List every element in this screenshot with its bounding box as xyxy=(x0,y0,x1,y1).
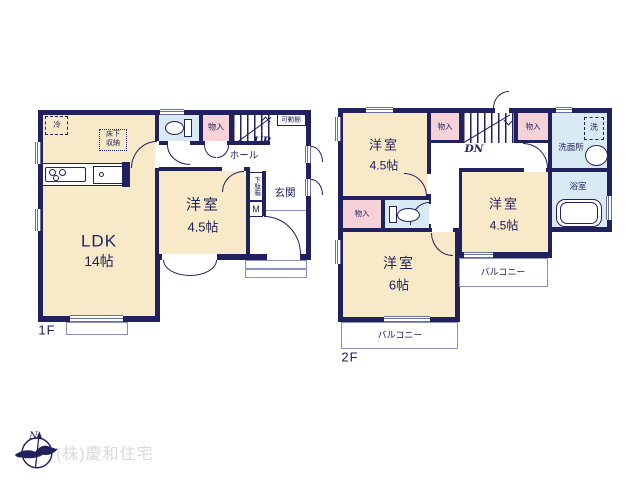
underfloor-label-2: 収納 xyxy=(106,140,120,148)
toilet-tank-icon xyxy=(389,206,397,223)
compass-icon: N xyxy=(12,426,60,474)
sink-basin-icon xyxy=(585,145,608,166)
wall xyxy=(122,162,130,187)
window xyxy=(384,316,430,322)
door-gap xyxy=(432,228,453,232)
window xyxy=(335,240,341,264)
genkan-step-line xyxy=(266,210,306,211)
closet-label-2f-top2: 物入 xyxy=(526,123,541,131)
fridge-label: 冷 xyxy=(53,121,61,129)
closet-label-1f: 物入 xyxy=(208,124,224,133)
casement-window-arc xyxy=(311,146,323,162)
svg-text:N: N xyxy=(28,430,38,441)
toilet-icon xyxy=(397,208,420,222)
shoe-cabinet-label: 下駄箱 xyxy=(252,176,259,196)
casement-window-arc xyxy=(311,179,323,195)
toilet-icon xyxy=(165,121,184,135)
floorplan-canvas: LDK 14帖 洋室 4.5帖 冷 床下 収納 物入 可動棚 ホール UP 玄関… xyxy=(0,0,640,480)
door-gap xyxy=(427,174,431,194)
floor-label-2f: 2F xyxy=(341,351,358,366)
terrace-step xyxy=(66,322,128,335)
room-label-yoshitsu-1f: 洋室 xyxy=(186,198,220,215)
room-label-yoshitsu-e: 洋室 xyxy=(489,198,519,213)
bathroom-label: 浴室 xyxy=(569,182,586,192)
balcony-east-label: バルコニー xyxy=(481,267,526,277)
window xyxy=(556,107,572,113)
faucet-icon xyxy=(99,172,104,177)
terrace-door-arc xyxy=(163,260,190,276)
room-size-ldk: 14帖 xyxy=(84,254,114,270)
hall-2f xyxy=(431,143,459,228)
window xyxy=(335,117,341,141)
porch-step xyxy=(245,260,307,269)
stairs-up-label: UP xyxy=(253,136,270,148)
door-gap xyxy=(495,108,509,113)
room-label-ldk: LDK xyxy=(81,231,117,250)
washroom-label: 洗面所 xyxy=(558,143,584,153)
toilet-tank-icon xyxy=(184,119,192,137)
company-name: (株)慶和住宅 xyxy=(56,440,154,464)
room-size-yoshitsu-e: 4.5帖 xyxy=(490,219,519,232)
room-size-yoshitsu-1f: 4.5帖 xyxy=(187,221,218,236)
room-label-yoshitsu-nw: 洋室 xyxy=(369,139,399,154)
underfloor-label-1: 床下 xyxy=(106,131,120,139)
porch-step xyxy=(245,269,307,278)
room-label-yoshitsu-sw: 洋室 xyxy=(383,256,415,272)
door-gap xyxy=(429,204,433,224)
window xyxy=(606,196,612,220)
closet-label-2f-top1: 物入 xyxy=(438,123,453,131)
burner-icon xyxy=(53,175,59,181)
window xyxy=(366,107,393,113)
room-size-yoshitsu-sw: 6帖 xyxy=(389,279,409,294)
window xyxy=(70,315,123,322)
stairs-dn-label: DN xyxy=(465,144,484,156)
genkan-label: 玄関 xyxy=(275,188,296,200)
hall-label: ホール xyxy=(230,152,259,163)
window xyxy=(464,252,493,258)
floor-label-1f: 1F xyxy=(38,324,55,339)
washer-label: 洗 xyxy=(590,124,598,133)
room-size-yoshitsu-nw: 4.5帖 xyxy=(370,159,399,172)
bathtub-inner-icon xyxy=(560,202,598,224)
door-arc xyxy=(493,91,509,108)
movable-shelf-label: 可動棚 xyxy=(281,116,301,123)
meter-label: M xyxy=(252,204,260,214)
burner-icon xyxy=(59,169,66,176)
sink-icon xyxy=(93,166,123,184)
door-gap xyxy=(524,168,546,172)
window xyxy=(160,109,184,115)
closet-label-2f-sw: 物入 xyxy=(355,210,370,218)
window xyxy=(35,142,41,164)
balcony-south-label: バルコニー xyxy=(378,330,423,340)
terrace-door-arc xyxy=(190,260,217,276)
window xyxy=(35,209,41,231)
